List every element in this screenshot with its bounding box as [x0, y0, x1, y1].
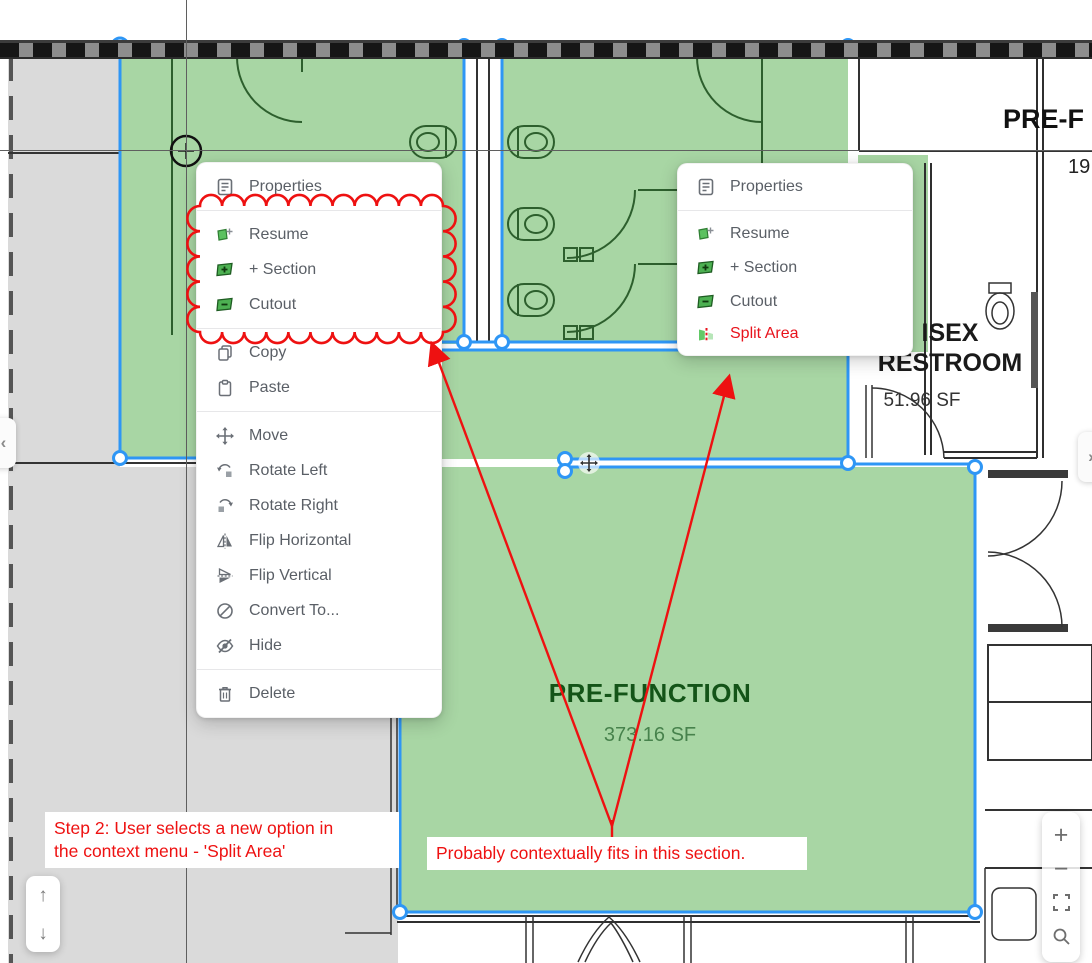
- chevron-right-icon: ›: [1088, 447, 1092, 467]
- menu-item-rotate-right[interactable]: Rotate Right: [197, 488, 441, 523]
- resume-icon: [215, 225, 235, 245]
- hide-icon: [215, 636, 235, 656]
- menu-item-move[interactable]: Move: [197, 418, 441, 453]
- context-menu-right: Properties Resume + Section Cutout Split…: [677, 163, 913, 356]
- selection-handle[interactable]: [458, 336, 471, 349]
- menu-item-paste[interactable]: Paste: [197, 370, 441, 405]
- app-canvas: PRE-FUNCTION 373.16 SF ISEX RESTROOM 51.…: [0, 0, 1092, 963]
- add-section-icon: [215, 260, 235, 280]
- selection-handle[interactable]: [842, 457, 855, 470]
- add-section-icon: [696, 258, 716, 278]
- pan-control: ↑ ↓: [26, 876, 60, 952]
- selection-handle[interactable]: [496, 336, 509, 349]
- annotation-step2: Step 2: User selects a new option in the…: [45, 812, 399, 868]
- resume-icon: [696, 224, 716, 244]
- menu-item-cutout[interactable]: Cutout: [678, 285, 912, 319]
- menu-separator: [197, 411, 441, 412]
- menu-item-flip-horizontal[interactable]: Flip Horizontal: [197, 523, 441, 558]
- fit-screen-button[interactable]: [1052, 892, 1071, 917]
- chevron-left-icon: ‹: [1, 433, 7, 453]
- area-prefunction-upper[interactable]: [400, 350, 848, 459]
- selection-handle[interactable]: [394, 906, 407, 919]
- menu-item-copy[interactable]: Copy: [197, 335, 441, 370]
- selection-handle[interactable]: [114, 452, 127, 465]
- selection-handle[interactable]: [969, 461, 982, 474]
- properties-icon: [215, 177, 235, 197]
- convert-to-icon: [215, 601, 235, 621]
- properties-icon: [696, 177, 716, 197]
- delete-icon: [215, 684, 235, 704]
- flip-horizontal-icon: [215, 531, 235, 551]
- wall-gap: [465, 46, 502, 342]
- pan-down-button[interactable]: ↓: [38, 924, 48, 943]
- menu-item-resume[interactable]: Resume: [197, 217, 441, 252]
- paste-icon: [215, 378, 235, 398]
- menu-item-flip-vertical[interactable]: Flip Vertical: [197, 558, 441, 593]
- cutout-icon: [696, 292, 716, 312]
- menu-item-convert-to[interactable]: Convert To...: [197, 593, 441, 628]
- menu-separator: [197, 210, 441, 211]
- menu-separator: [197, 669, 441, 670]
- menu-item-add-section[interactable]: + Section: [197, 252, 441, 287]
- move-icon: [215, 426, 235, 446]
- menu-item-rotate-left[interactable]: Rotate Left: [197, 453, 441, 488]
- copy-icon: [215, 343, 235, 363]
- selection-handle[interactable]: [559, 465, 572, 478]
- zoom-toolbar: + −: [1042, 812, 1080, 962]
- crosshair-horizontal: [0, 150, 1092, 151]
- rotate-left-icon: [215, 461, 235, 481]
- zoom-in-button[interactable]: +: [1054, 823, 1069, 848]
- prev-page-button[interactable]: ‹: [0, 418, 16, 468]
- menu-item-cutout[interactable]: Cutout: [197, 287, 441, 322]
- menu-separator: [678, 210, 912, 211]
- pan-up-button[interactable]: ↑: [38, 886, 48, 905]
- annotation-note: Probably contextually fits in this secti…: [427, 837, 807, 870]
- menu-item-resume[interactable]: Resume: [678, 217, 912, 251]
- zoom-out-button[interactable]: −: [1054, 857, 1069, 882]
- cutout-icon: [215, 295, 235, 315]
- menu-item-properties[interactable]: Properties: [678, 170, 912, 204]
- wall-hatch: [0, 40, 1092, 59]
- selection-handle[interactable]: [969, 906, 982, 919]
- split-area-icon: [696, 324, 716, 344]
- menu-item-hide[interactable]: Hide: [197, 628, 441, 663]
- menu-item-properties[interactable]: Properties: [197, 169, 441, 204]
- next-page-button[interactable]: ›: [1078, 432, 1092, 482]
- move-cursor-icon: [578, 452, 600, 474]
- rotate-right-icon: [215, 496, 235, 516]
- menu-item-delete[interactable]: Delete: [197, 676, 441, 711]
- context-menu-left: Properties Resume + Section Cutout Copy …: [196, 162, 442, 718]
- menu-separator: [197, 328, 441, 329]
- magnifier-button[interactable]: [1052, 926, 1071, 951]
- flip-vertical-icon: [215, 566, 235, 586]
- menu-item-split-area[interactable]: Split Area: [678, 319, 912, 349]
- menu-item-add-section[interactable]: + Section: [678, 251, 912, 285]
